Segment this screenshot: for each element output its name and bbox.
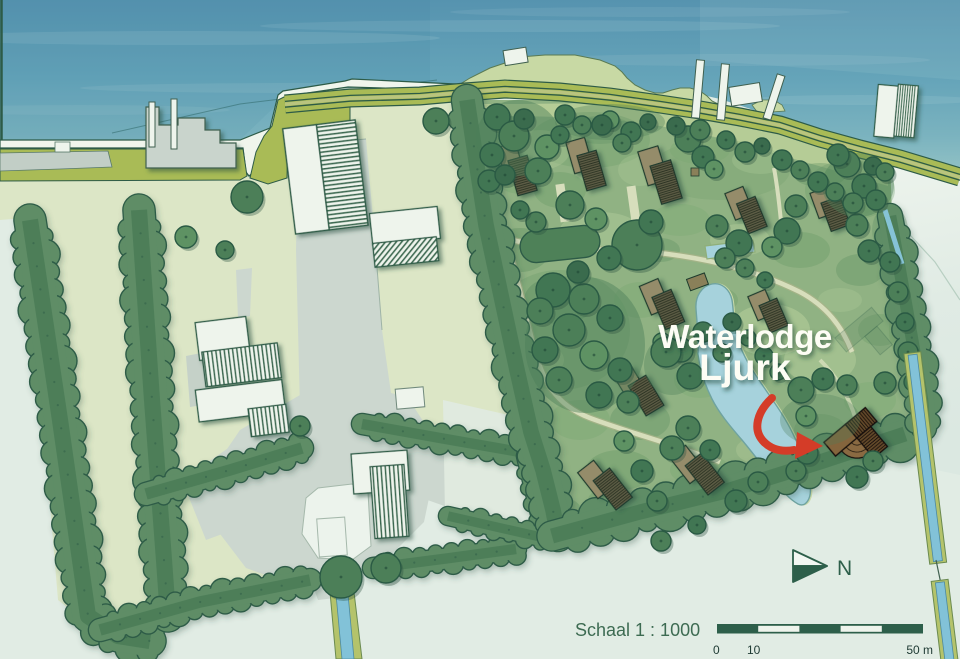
- svg-text:50 m: 50 m: [906, 643, 933, 657]
- svg-text:Schaal 1 : 1000: Schaal 1 : 1000: [575, 620, 700, 640]
- svg-text:Ljurk: Ljurk: [699, 346, 791, 388]
- svg-text:10: 10: [747, 643, 761, 657]
- svg-text:0: 0: [713, 643, 720, 657]
- svg-text:N: N: [837, 557, 852, 580]
